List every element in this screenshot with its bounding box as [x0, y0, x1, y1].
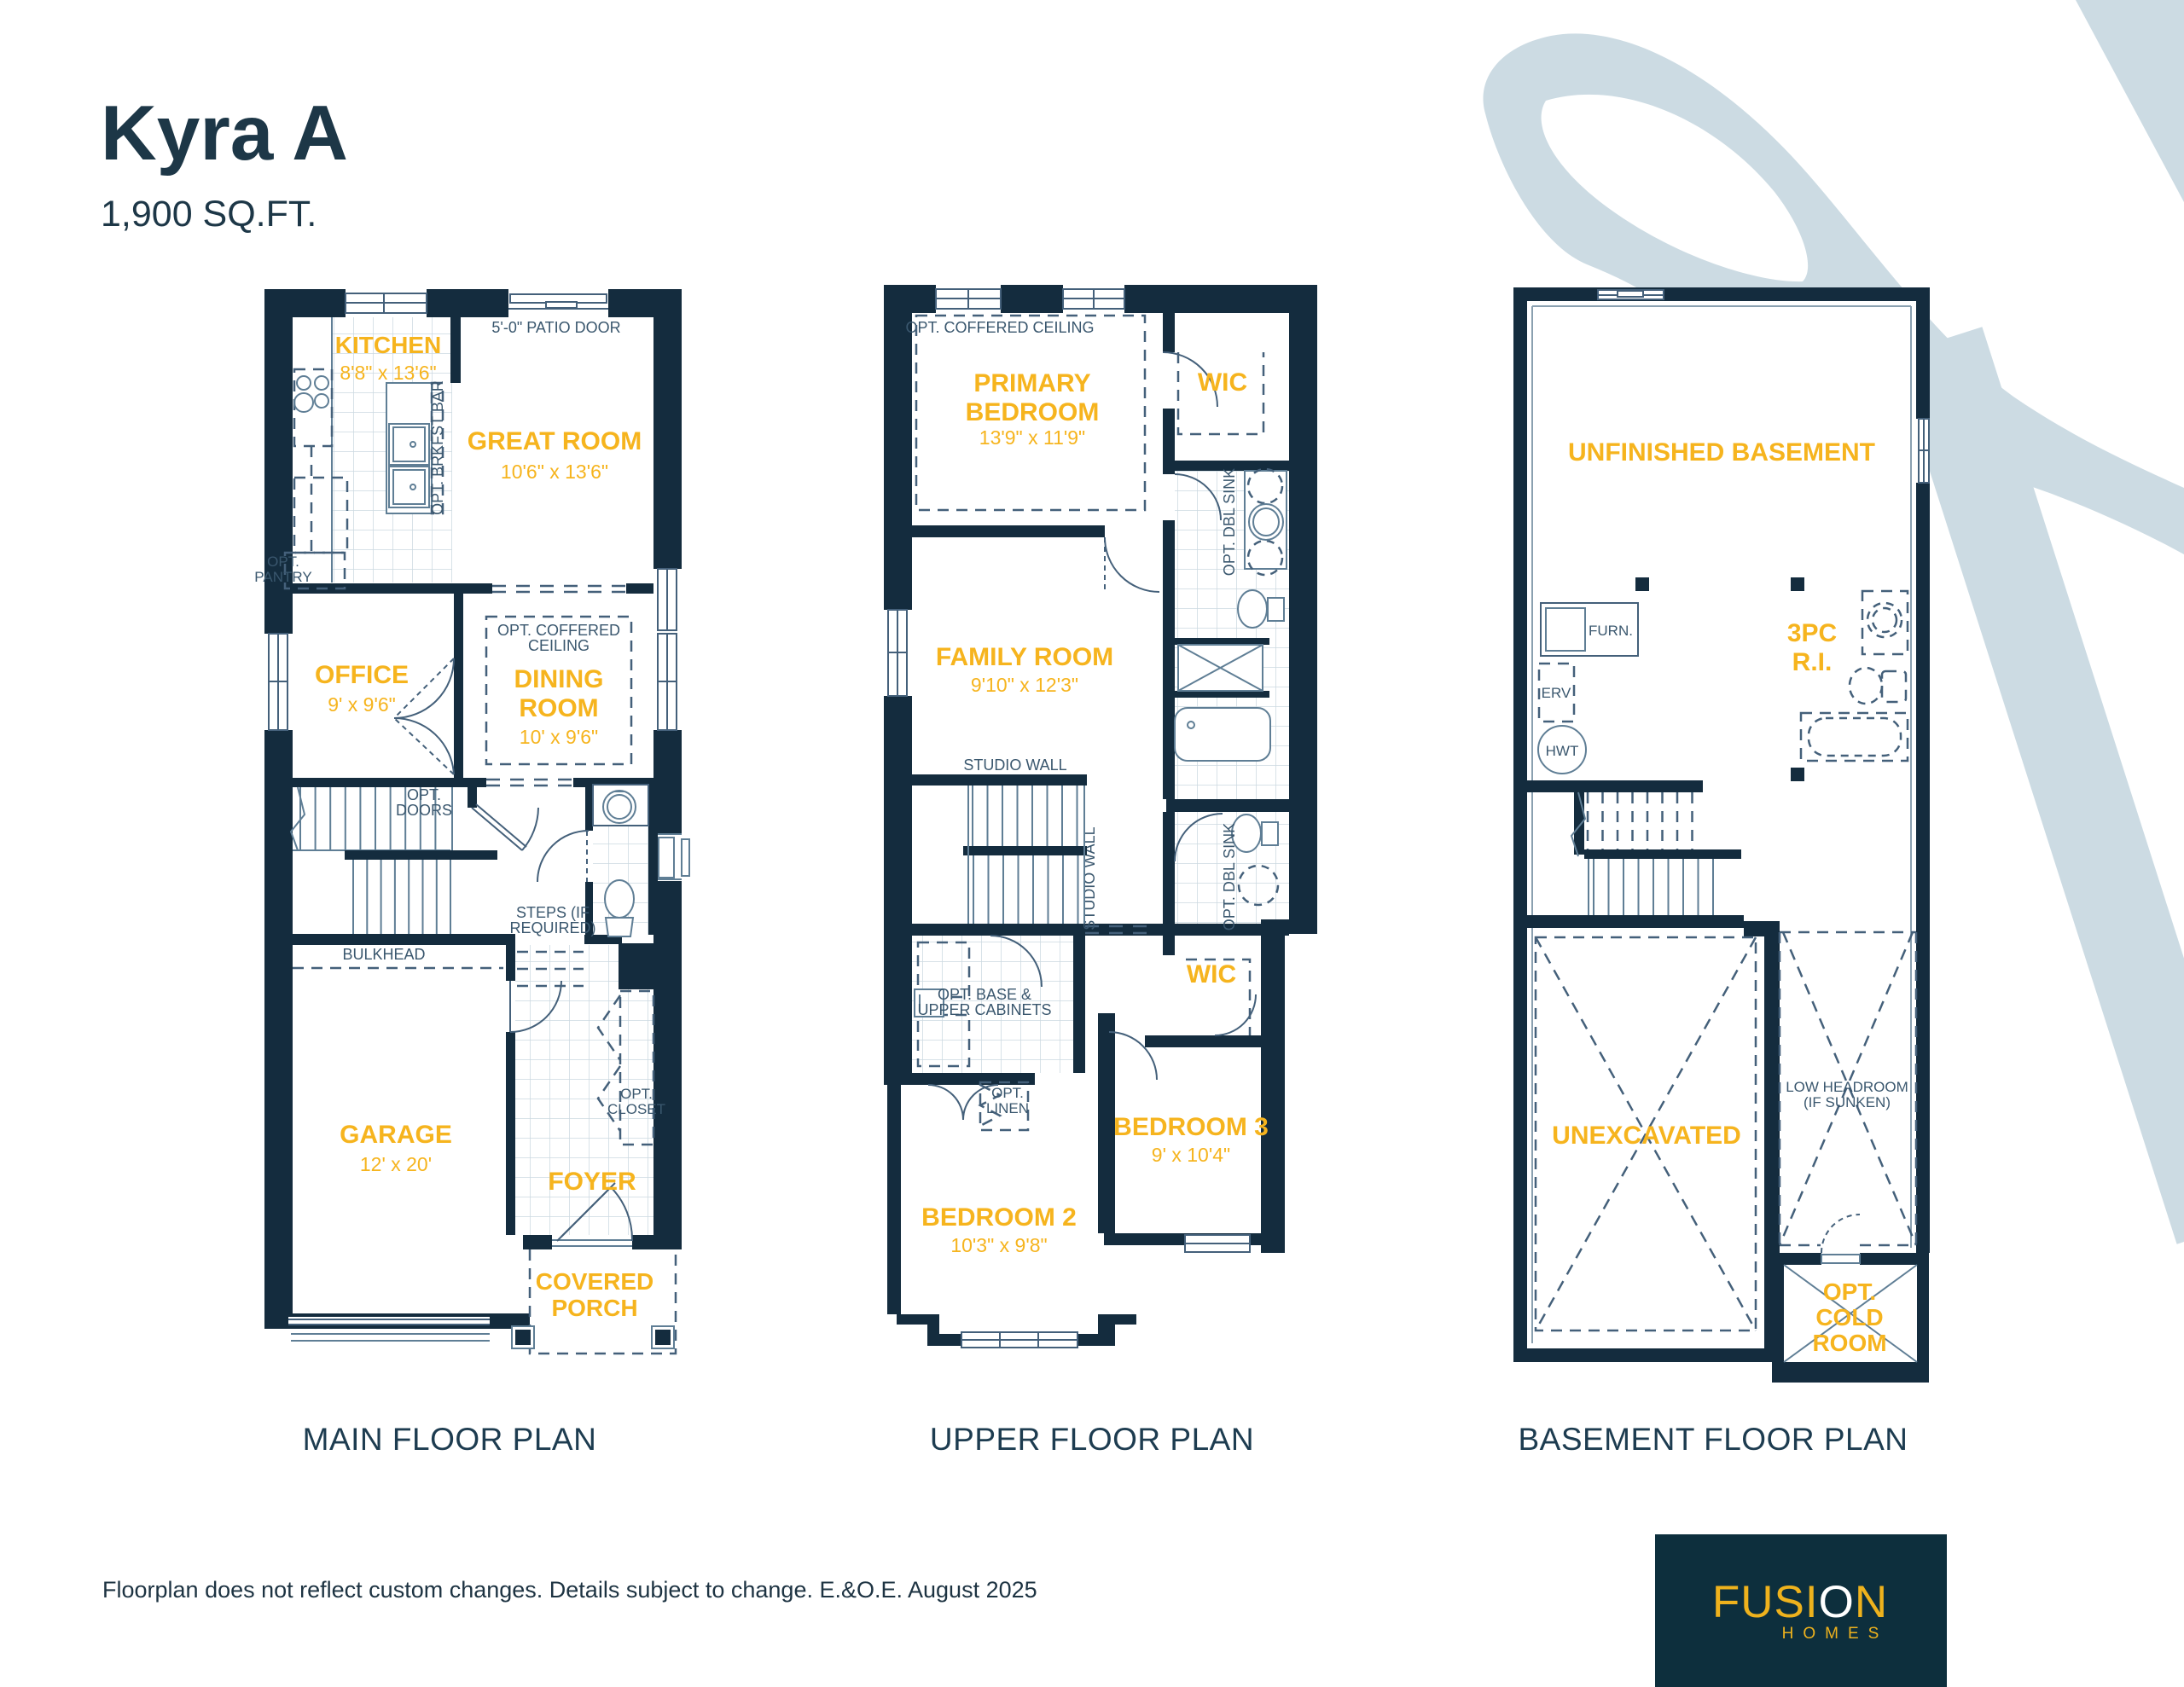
svg-text:OPT.: OPT.: [1823, 1278, 1876, 1305]
svg-text:BULKHEAD: BULKHEAD: [342, 946, 425, 963]
svg-text:13'9" x 11'9": 13'9" x 11'9": [979, 426, 1085, 449]
svg-text:5'-0" PATIO DOOR: 5'-0" PATIO DOOR: [491, 319, 620, 336]
svg-text:OPT. DBL SINK: OPT. DBL SINK: [1221, 823, 1238, 930]
svg-text:KITCHEN: KITCHEN: [335, 332, 441, 358]
svg-text:DOORS: DOORS: [396, 802, 452, 819]
svg-text:BEDROOM: BEDROOM: [966, 398, 1100, 426]
svg-text:OPT.: OPT.: [267, 554, 299, 570]
svg-text:FURN.: FURN.: [1589, 623, 1633, 639]
svg-text:MAIN FLOOR PLAN: MAIN FLOOR PLAN: [303, 1422, 597, 1457]
svg-text:OPT. COFFERED CEILING: OPT. COFFERED CEILING: [905, 319, 1094, 336]
svg-text:10' x 9'6": 10' x 9'6": [520, 726, 598, 748]
svg-text:9'10" x 12'3": 9'10" x 12'3": [971, 674, 1078, 696]
svg-text:BASEMENT FLOOR PLAN: BASEMENT FLOOR PLAN: [1518, 1422, 1908, 1457]
svg-text:PANTRY: PANTRY: [254, 569, 311, 585]
svg-text:FOYER: FOYER: [548, 1168, 636, 1196]
svg-text:UNEXCAVATED: UNEXCAVATED: [1552, 1122, 1741, 1150]
svg-text:OPT. BASE &: OPT. BASE &: [938, 986, 1031, 1003]
svg-text:(IF SUNKEN): (IF SUNKEN): [1804, 1094, 1891, 1110]
svg-text:12' x 20': 12' x 20': [360, 1153, 432, 1175]
svg-text:Floorplan does not reflect cus: Floorplan does not reflect custom change…: [102, 1577, 1037, 1603]
svg-text:ROOM: ROOM: [519, 694, 598, 722]
svg-text:COVERED: COVERED: [536, 1268, 653, 1295]
svg-text:STEPS (IF: STEPS (IF: [516, 904, 590, 921]
svg-text:CEILING: CEILING: [528, 637, 590, 654]
svg-text:Kyra A: Kyra A: [101, 90, 348, 177]
svg-text:OPT.: OPT.: [407, 786, 441, 803]
svg-text:PORCH: PORCH: [551, 1295, 637, 1321]
svg-text:OPT.: OPT.: [620, 1086, 653, 1102]
svg-text:ROOM: ROOM: [1812, 1330, 1886, 1356]
svg-text:WIC: WIC: [1198, 368, 1247, 397]
svg-text:DINING: DINING: [514, 665, 604, 693]
svg-text:OFFICE: OFFICE: [315, 661, 409, 689]
svg-text:BEDROOM 3: BEDROOM 3: [1113, 1113, 1269, 1141]
svg-text:ERV: ERV: [1542, 685, 1571, 701]
svg-text:LINEN: LINEN: [986, 1100, 1029, 1116]
svg-text:OPT. COFFERED: OPT. COFFERED: [497, 622, 620, 639]
svg-text:3PC: 3PC: [1787, 619, 1837, 647]
svg-text:GARAGE: GARAGE: [340, 1121, 452, 1149]
svg-text:8'8" x 13'6": 8'8" x 13'6": [340, 362, 436, 384]
svg-text:CLOSET: CLOSET: [607, 1101, 665, 1117]
svg-text:10'3" x 9'8": 10'3" x 9'8": [950, 1234, 1047, 1256]
svg-text:OPT. DBL SINK: OPT. DBL SINK: [1221, 468, 1238, 576]
svg-text:1,900 SQ.FT.: 1,900 SQ.FT.: [101, 194, 317, 235]
svg-text:LOW HEADROOM: LOW HEADROOM: [1786, 1079, 1908, 1095]
svg-text:PRIMARY: PRIMARY: [973, 369, 1090, 397]
svg-text:UPPER FLOOR PLAN: UPPER FLOOR PLAN: [930, 1422, 1254, 1457]
svg-text:10'6" x 13'6": 10'6" x 13'6": [501, 461, 608, 483]
svg-text:HWT: HWT: [1546, 743, 1579, 759]
svg-text:BEDROOM 2: BEDROOM 2: [921, 1203, 1077, 1232]
svg-text:UPPER CABINETS: UPPER CABINETS: [917, 1001, 1051, 1018]
svg-text:FUSION: FUSION: [1712, 1577, 1888, 1627]
svg-text:OPT. BRKFST BAR: OPT. BRKFST BAR: [429, 380, 446, 515]
svg-text:REQUIRED): REQUIRED): [509, 919, 595, 936]
svg-text:FAMILY ROOM: FAMILY ROOM: [936, 643, 1113, 671]
svg-text:R.I.: R.I.: [1792, 648, 1833, 676]
svg-text:GREAT ROOM: GREAT ROOM: [468, 427, 642, 455]
svg-text:9' x 9'6": 9' x 9'6": [328, 693, 396, 716]
svg-text:WIC: WIC: [1187, 960, 1236, 988]
svg-text:HOMES: HOMES: [1782, 1625, 1889, 1643]
svg-text:UNFINISHED BASEMENT: UNFINISHED BASEMENT: [1568, 438, 1875, 467]
svg-text:9' x 10'4": 9' x 10'4": [1152, 1144, 1230, 1166]
svg-text:OPT.: OPT.: [991, 1085, 1024, 1101]
svg-text:COLD: COLD: [1815, 1304, 1883, 1330]
svg-text:STUDIO WALL: STUDIO WALL: [963, 757, 1066, 774]
